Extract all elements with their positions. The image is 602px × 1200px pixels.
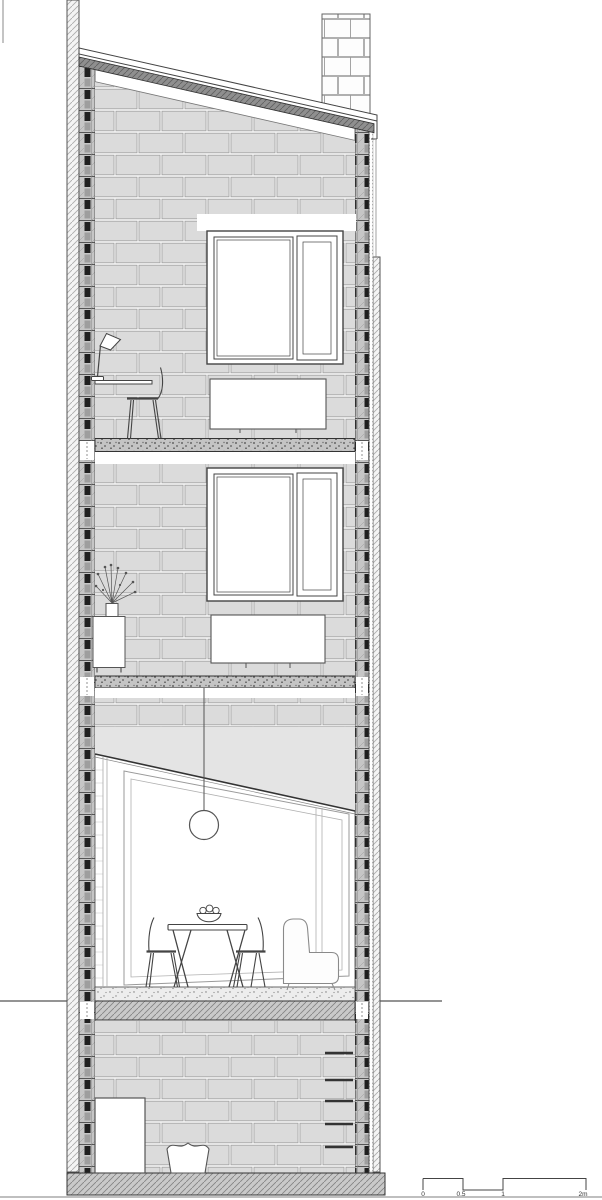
rear-glazed-wall-inner bbox=[131, 779, 342, 977]
room-corner-lines bbox=[103, 757, 107, 987]
scale-bar-rule bbox=[423, 1179, 586, 1191]
sideboard bbox=[93, 617, 125, 673]
floor-slab-1 bbox=[95, 439, 355, 465]
washing-machine bbox=[95, 1098, 145, 1173]
left-wall-boards bbox=[96, 770, 104, 978]
party-wall-left bbox=[67, 0, 79, 1172]
sloped-ceiling-poche bbox=[95, 727, 355, 811]
ground-slab bbox=[95, 1001, 355, 1020]
basement-slab bbox=[67, 1173, 385, 1195]
scale-label-1: 1 bbox=[501, 1191, 505, 1198]
fruit-bowl bbox=[197, 905, 221, 922]
bedroom-radiator bbox=[211, 615, 325, 668]
cavity-vent-strip bbox=[369, 132, 373, 1172]
laundry-basket bbox=[167, 1143, 209, 1173]
party-wall-right bbox=[373, 257, 380, 1172]
scale-label-2m: 2m bbox=[578, 1191, 587, 1198]
window-head-band-top bbox=[197, 214, 356, 231]
scale-bar: 0 0.5 1 2m bbox=[421, 1179, 587, 1199]
desk bbox=[95, 381, 152, 385]
floor-slab-2 bbox=[95, 676, 355, 698]
architectural-section-sheet: 0 0.5 1 2m bbox=[0, 0, 602, 1200]
lounge-chair bbox=[284, 919, 339, 990]
section-drawing: 0 0.5 1 2m bbox=[0, 0, 602, 1200]
scale-label-0-5: 0.5 bbox=[456, 1191, 465, 1198]
scale-label-0: 0 bbox=[421, 1191, 425, 1198]
ground-floor-screed bbox=[95, 987, 355, 1001]
chimney bbox=[322, 14, 370, 114]
rear-wall-mullions bbox=[316, 807, 322, 969]
bedroom-window bbox=[207, 468, 343, 601]
study-window bbox=[207, 231, 343, 364]
study-radiator bbox=[210, 379, 326, 433]
